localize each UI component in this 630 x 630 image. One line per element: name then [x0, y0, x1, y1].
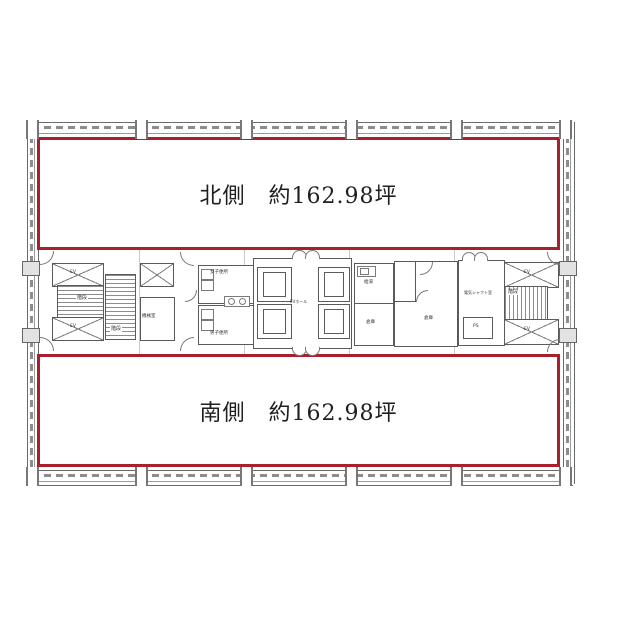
curtain-wall-hatch — [566, 124, 569, 482]
sink-basin — [239, 298, 246, 305]
double-door-leaf — [474, 252, 488, 261]
curtain-wall-hatch — [32, 474, 571, 477]
sink-basin — [228, 298, 235, 305]
elevator-hall-label: EVホール — [290, 300, 307, 304]
womens-toilet-label: 女子便所 — [210, 271, 228, 276]
mullion — [135, 120, 148, 139]
toilet-stall — [201, 320, 214, 331]
mullion — [345, 120, 358, 139]
door-arc — [185, 290, 197, 302]
elevator-car — [263, 309, 286, 334]
storage-room-large — [394, 261, 458, 347]
curtain-wall-hatch — [32, 126, 571, 129]
stair-label: 階段 — [76, 296, 88, 301]
stair-label: 階段 — [110, 327, 122, 332]
partition-wall — [415, 262, 416, 302]
elevator-shaft — [140, 263, 174, 287]
elevator-shaft — [52, 317, 104, 341]
bottom-exterior-wall — [30, 470, 573, 486]
elevator-shaft — [504, 262, 559, 288]
floor-plan: 北側 約162.98坪 南側 約162.98坪 — [0, 0, 630, 630]
mullion — [559, 467, 572, 486]
wall-inner-line — [32, 133, 571, 134]
mullion — [240, 120, 253, 139]
machine-room-label: 機械室 — [142, 315, 156, 320]
wall-inner-line — [32, 481, 571, 482]
elevator-car — [324, 272, 344, 297]
elevator-shaft — [318, 267, 350, 302]
electrical-shaft-room-label: 電気シャフト室 — [464, 291, 492, 295]
mullion — [26, 467, 39, 486]
column-block — [22, 328, 40, 343]
column-block — [559, 328, 577, 343]
elevator-label: EV — [70, 271, 76, 276]
elevator-shaft — [318, 304, 350, 339]
storage-label: 倉庫 — [424, 317, 433, 322]
mens-toilet-label: 男子便所 — [210, 332, 228, 337]
north-tenant-area: 北側 約162.98坪 — [37, 137, 560, 250]
elevator-shaft — [52, 263, 104, 287]
partition-wall — [394, 301, 415, 302]
storage-label: 倉庫 — [366, 321, 375, 326]
elevator-car — [263, 272, 286, 297]
wall-inner-line — [570, 124, 571, 482]
stairwell-left — [57, 285, 104, 319]
column-block — [22, 261, 40, 276]
elevator-label: EV — [524, 271, 530, 276]
south-tenant-area: 南側 約162.98坪 — [37, 354, 560, 467]
double-door-leaf — [305, 250, 320, 259]
mullion — [345, 467, 358, 486]
stair-label: 階段 — [507, 290, 519, 295]
elevator-shaft — [257, 267, 292, 302]
elevator-label: EV — [524, 328, 530, 333]
elevator-car — [324, 309, 344, 334]
door-arc — [180, 252, 194, 266]
right-exterior-wall — [563, 122, 575, 484]
column-block — [559, 261, 577, 276]
mullion — [450, 467, 463, 486]
elevator-label: EV — [70, 325, 76, 330]
elevator-shaft — [257, 304, 292, 339]
toilet-stall — [201, 280, 214, 291]
kitchenette-label: 給湯 — [364, 281, 373, 286]
mullion — [450, 120, 463, 139]
north-area-label: 北側 約162.98坪 — [200, 178, 398, 210]
curtain-wall-hatch — [30, 124, 33, 482]
south-area-label: 南側 約162.98坪 — [200, 395, 398, 427]
mullion — [135, 467, 148, 486]
pipe-space-label: PS — [473, 325, 479, 330]
kitchen-sink — [360, 268, 369, 275]
door-arc — [180, 337, 194, 351]
mullion — [26, 120, 39, 139]
toilet-stall — [201, 309, 214, 320]
mullion — [559, 120, 572, 139]
wall-inner-line — [34, 124, 35, 482]
top-exterior-wall — [30, 122, 573, 138]
mullion — [240, 467, 253, 486]
